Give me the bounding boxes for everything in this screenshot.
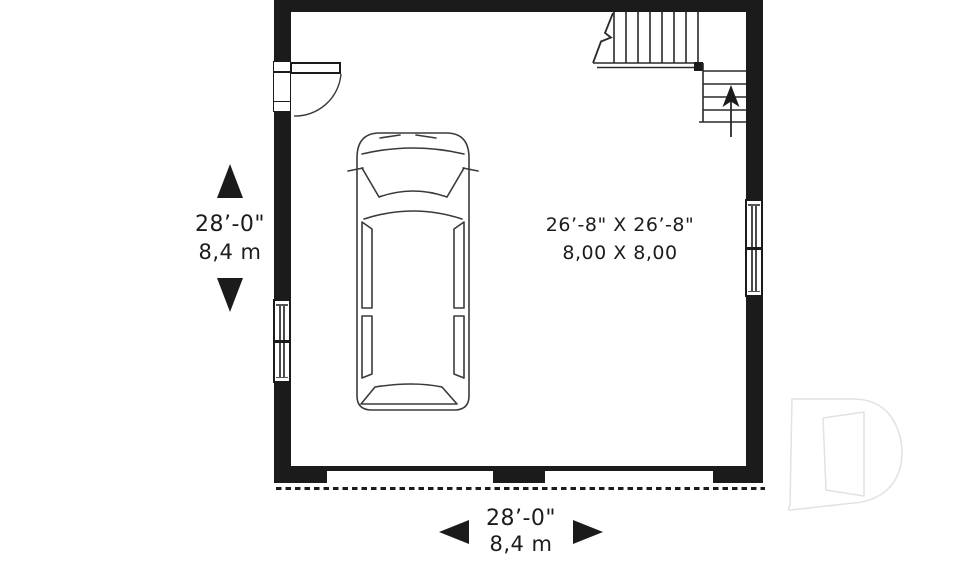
- car-roof-line: [364, 211, 462, 219]
- dimension-bottom-imperial: 28’-0": [477, 506, 565, 532]
- car-window-left-rear: [362, 316, 372, 378]
- car-side-mirrors: [348, 168, 478, 171]
- stair-corner-post: [694, 62, 703, 71]
- car-rear-window: [361, 384, 457, 404]
- up-arrow-icon: [217, 164, 243, 198]
- dimension-bottom-metric: 8,4 m: [477, 532, 565, 557]
- car-top-view: [348, 133, 478, 410]
- car-window-right-rear: [454, 316, 464, 378]
- dimension-bottom: 28’-0" 8,4 m: [436, 506, 606, 558]
- staircase: [593, 12, 746, 137]
- car-windshield: [362, 168, 464, 197]
- down-arrow-icon: [217, 278, 243, 312]
- car-window-left-front: [362, 222, 372, 308]
- room-size-imperial: 26’-8" X 26’-8": [515, 212, 725, 240]
- floor-plan: 28’-0" 8,4 m 26’-8" X 26’-8" 8,00 X 8,00…: [0, 0, 960, 569]
- dimension-left: 28’-0" 8,4 m: [182, 164, 278, 312]
- right-arrow-icon: [573, 520, 603, 544]
- room-size-metric: 8,00 X 8,00: [515, 240, 725, 268]
- dimension-left-imperial: 28’-0": [195, 211, 265, 239]
- dimension-left-metric: 8,4 m: [195, 239, 265, 265]
- plan-linework: [0, 0, 960, 569]
- car-body: [357, 133, 469, 410]
- stair-up-arrow-icon: [723, 85, 740, 137]
- stair-break-line: [593, 13, 613, 63]
- car-hood-lines: [380, 135, 436, 138]
- room-size-label: 26’-8" X 26’-8" 8,00 X 8,00: [515, 212, 725, 267]
- car-cowl-line: [362, 148, 464, 154]
- left-arrow-icon: [439, 520, 469, 544]
- entry-door-swing: [294, 74, 341, 116]
- drummond-d-logo: [789, 399, 902, 510]
- car-window-right-front: [454, 222, 464, 308]
